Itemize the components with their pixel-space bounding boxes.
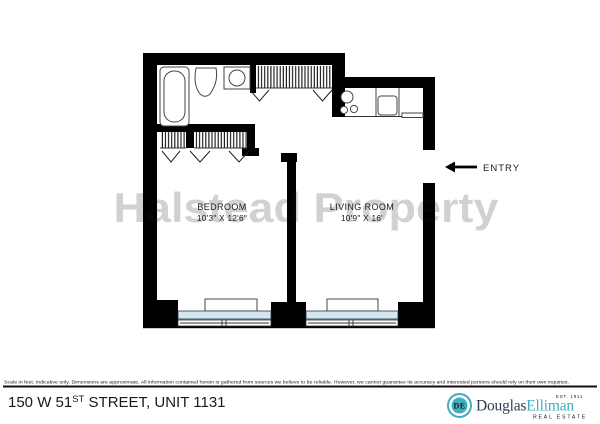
door-swing-icon [313, 90, 332, 101]
closet-hatch [194, 132, 247, 148]
window [306, 311, 398, 326]
douglas-elliman-logo: DE DouglasElliman EST. 1911 REAL ESTATE [448, 394, 587, 421]
kitchen-sink-icon [378, 96, 397, 115]
toilet-icon [195, 68, 217, 96]
brand-name-first: Douglas [476, 398, 526, 415]
entry: ENTRY [445, 162, 520, 175]
brand-name-second: Elliman [526, 398, 574, 415]
logo-mark-icon: DE [448, 394, 471, 417]
disclaimer-text: Scale in feet. Indicative only. Dimensio… [4, 380, 569, 385]
entry-label: ENTRY [483, 163, 520, 174]
window [178, 311, 271, 326]
footer-divider [3, 386, 597, 388]
bathroom-sink-icon [224, 67, 250, 89]
entry-arrow-icon [445, 162, 477, 173]
floorplan-page: ENTRY BEDROOM 10'3" X 12'6" LIVING ROOM … [0, 0, 600, 424]
bathtub-icon [160, 67, 189, 126]
logo-monogram: DE [453, 402, 465, 411]
radiator [205, 299, 257, 311]
brand-established: EST. 1911 [556, 394, 583, 399]
address-superscript: ST [72, 394, 84, 405]
dishwasher-icon [402, 113, 423, 118]
closet-hatch [256, 66, 332, 88]
kitchen [340, 88, 423, 118]
floorplan-canvas: ENTRY BEDROOM 10'3" X 12'6" LIVING ROOM … [0, 0, 600, 424]
address-suffix: STREET, UNIT 1131 [84, 394, 225, 411]
door-swing-icon [162, 151, 180, 162]
radiator [327, 299, 378, 311]
address-prefix: 150 W 51 [8, 394, 72, 411]
door-swing-icon [190, 151, 210, 162]
bathroom [160, 67, 250, 126]
brand-tagline: REAL ESTATE [533, 415, 587, 421]
closet-hatch [160, 132, 186, 148]
svg-text:DouglasElliman: DouglasElliman [476, 398, 574, 415]
watermark: Halstead Property [114, 184, 500, 231]
address-title: 150 W 51ST STREET, UNIT 1131 [8, 394, 226, 411]
